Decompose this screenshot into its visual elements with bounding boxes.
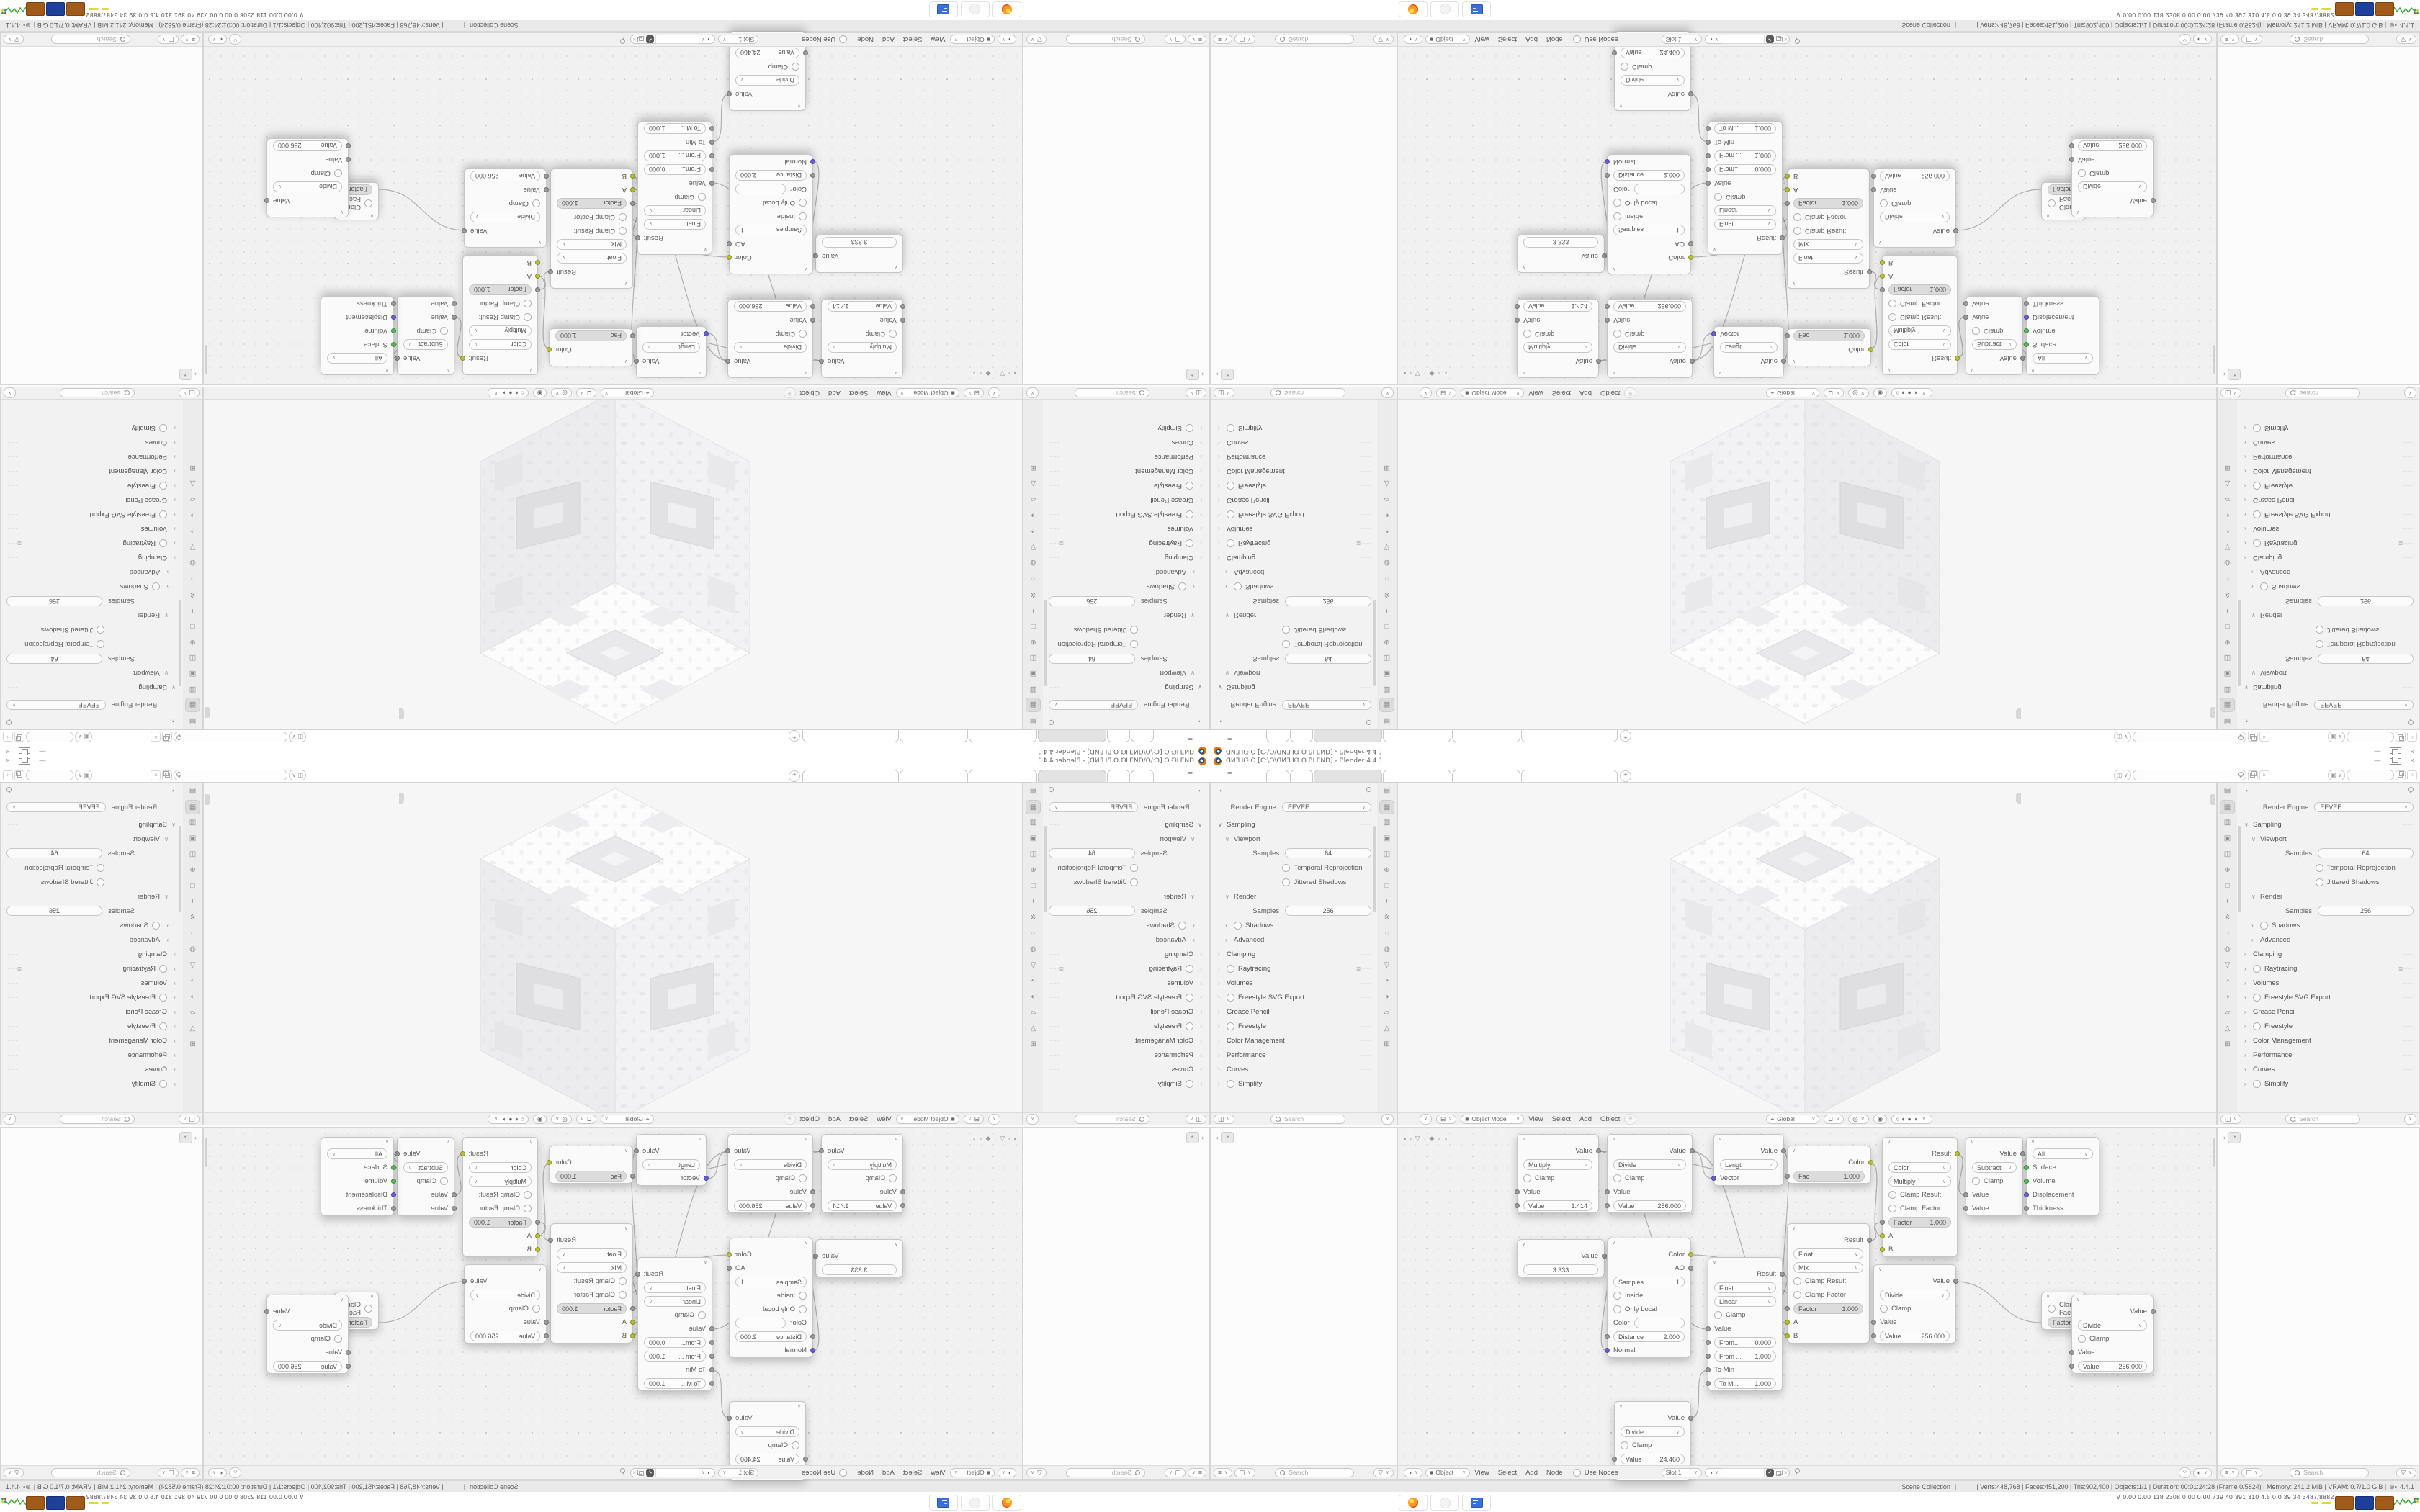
section-checkbox[interactable]: [1186, 540, 1193, 548]
grip-dots[interactable]: ····: [1361, 980, 1371, 986]
input-socket[interactable]: [1785, 1333, 1790, 1338]
input-socket[interactable]: [630, 1333, 635, 1338]
input-socket[interactable]: [803, 1457, 808, 1462]
node-collapse-arrow[interactable]: ∨: [2072, 207, 2153, 217]
input-socket[interactable]: [1785, 1320, 1790, 1325]
menu-select[interactable]: Select: [1498, 36, 1517, 44]
node-map-range[interactable]: ∨ResultFloat∨Linear∨ClampValueFrom...0.0…: [1708, 121, 1783, 255]
grip-dots[interactable]: ····: [1361, 454, 1371, 461]
node-collapse-arrow[interactable]: ∨: [1608, 368, 1692, 377]
input-socket[interactable]: [535, 274, 540, 279]
options-button[interactable]: ∨: [2404, 1114, 2416, 1125]
properties-tab-icon[interactable]: ▦: [2220, 800, 2235, 814]
node-checkbox[interactable]: [2078, 169, 2086, 177]
node-select[interactable]: Divide∨: [1613, 1159, 1686, 1170]
node-checkbox[interactable]: [524, 1191, 532, 1199]
tab-2[interactable]: [1107, 770, 1130, 783]
unlink-icon[interactable]: ×: [632, 36, 636, 43]
node-checkbox[interactable]: [524, 1205, 532, 1212]
node-value-field[interactable]: 3.333: [822, 1264, 897, 1275]
node-checkbox[interactable]: [1613, 330, 1621, 338]
filter-funnel-button[interactable]: ▽∨: [1026, 1468, 1047, 1477]
node-mix-color-fac[interactable]: ∨ColorFac1.000: [1787, 1146, 1871, 1184]
firefox-icon[interactable]: [1399, 1495, 1428, 1511]
filter-type-button[interactable]: ◫∨: [2241, 1468, 2262, 1477]
input-socket[interactable]: [630, 187, 635, 192]
properties-scrollbar[interactable]: [1373, 600, 1376, 686]
search-input[interactable]: Search: [2290, 1468, 2369, 1477]
grip-dots[interactable]: ····: [1361, 498, 1371, 504]
grip-dots[interactable]: ····: [2403, 685, 2414, 691]
properties-tab-icon[interactable]: ▤: [2220, 714, 2235, 728]
properties-tab-icon[interactable]: ◑: [1026, 990, 1041, 1004]
properties-tab-icon[interactable]: ※: [1026, 587, 1041, 601]
node-collapse-arrow[interactable]: ∨: [730, 264, 812, 274]
node-value-field[interactable]: Value256.000: [2078, 140, 2147, 151]
grip-dots[interactable]: ····: [2403, 951, 2414, 958]
menu-view[interactable]: View: [1528, 1115, 1543, 1123]
tab-5[interactable]: [900, 770, 968, 783]
shading-mode-group[interactable]: ○◐●◑∨: [1891, 389, 1932, 398]
tab-5[interactable]: [900, 729, 968, 742]
node-value-field[interactable]: Value256.000: [2078, 1361, 2147, 1372]
input-socket[interactable]: [2069, 157, 2074, 162]
properties-tab-icon[interactable]: ◔: [1026, 974, 1041, 989]
node-select[interactable]: Length∨: [642, 1159, 700, 1170]
input-socket[interactable]: [1785, 201, 1790, 206]
checkbox[interactable]: [97, 626, 104, 634]
node-collapse-arrow[interactable]: ∨: [463, 365, 537, 374]
pin-icon[interactable]: [1366, 787, 1371, 796]
node-collapse-arrow[interactable]: ∨: [1608, 1135, 1692, 1144]
tab-3[interactable]: [1038, 770, 1106, 783]
grip-dots[interactable]: ····: [1361, 1081, 1371, 1087]
firefox-icon[interactable]: [1399, 1, 1428, 17]
tab-1[interactable]: [1131, 729, 1154, 742]
gizmo-button[interactable]: ◉: [533, 1115, 547, 1124]
header-collapse-button[interactable]: ∨: [988, 388, 1000, 399]
input-socket[interactable]: [810, 159, 815, 164]
render-engine-select[interactable]: EEVEE∨: [2314, 802, 2414, 812]
use-nodes-toggle[interactable]: ​Use Nodes: [802, 1469, 847, 1477]
breadcrumb-icon[interactable]: ◆: [1429, 369, 1434, 377]
node-value-field[interactable]: Samples1: [1613, 1277, 1685, 1287]
tab-4[interactable]: [969, 770, 1037, 783]
copy-icon[interactable]: [1776, 37, 1782, 43]
grip-dots[interactable]: ····: [1049, 966, 1059, 972]
output-socket[interactable]: [1602, 1254, 1607, 1259]
breadcrumb-icon[interactable]: ▽: [1000, 1135, 1005, 1143]
node-checkbox[interactable]: [1888, 1205, 1896, 1212]
node-collapse-arrow[interactable]: ∨: [465, 238, 546, 247]
node-value-field[interactable]: Distance2.000: [735, 1331, 807, 1342]
output-socket[interactable]: [635, 235, 640, 240]
close-icon[interactable]: ×: [2259, 732, 2269, 742]
node-material-output[interactable]: ∨All∨SurfaceVolumeDisplacementThickness: [321, 296, 394, 375]
filter-funnel-button[interactable]: ▽∨: [1026, 35, 1047, 45]
editor-type-button[interactable]: ◫∨: [2220, 389, 2241, 398]
node-value-field[interactable]: To M...1.000: [1714, 123, 1776, 134]
input-socket[interactable]: [391, 1179, 396, 1184]
grip-dots[interactable]: ····: [6, 1081, 17, 1087]
search-input[interactable]: Search: [1270, 1115, 1345, 1124]
input-socket[interactable]: [1605, 1348, 1610, 1353]
node-math-divide-a[interactable]: ∨ValueDivide∨ClampValueValue256.000: [727, 299, 813, 378]
node-select[interactable]: Float∨: [557, 1248, 627, 1259]
filter-type-button[interactable]: ◫∨: [1234, 1468, 1255, 1477]
properties-tab-icon[interactable]: ▤: [1379, 784, 1394, 798]
pin-icon[interactable]: [1049, 787, 1054, 796]
node-select[interactable]: All∨: [2033, 1148, 2093, 1159]
input-socket[interactable]: [900, 304, 905, 309]
properties-tab-icon[interactable]: ◔: [185, 974, 200, 989]
id-field[interactable]: [26, 770, 73, 780]
input-socket[interactable]: [1706, 1381, 1711, 1386]
search-input[interactable]: Search: [1075, 389, 1149, 398]
checkbox[interactable]: [1282, 626, 1290, 634]
section-checkbox[interactable]: [1227, 482, 1234, 490]
node-select[interactable]: Float∨: [557, 253, 627, 264]
sidebar-toggle-nub[interactable]: [399, 793, 404, 804]
properties-tab-icon[interactable]: ◌: [1026, 571, 1041, 585]
properties-tab-icon[interactable]: ◑: [1379, 508, 1394, 522]
checkbox[interactable]: [1282, 864, 1290, 872]
output-socket[interactable]: [395, 356, 400, 361]
grip-dots[interactable]: ····: [1049, 426, 1059, 432]
input-socket[interactable]: [1880, 260, 1885, 265]
properties-tab-icon[interactable]: ▣: [1379, 832, 1394, 846]
grip-dots[interactable]: ····: [1049, 541, 1059, 547]
grip-dots[interactable]: ····: [6, 1023, 17, 1030]
image-icon[interactable]: ▣ ∨: [2328, 770, 2345, 780]
input-socket[interactable]: [900, 1189, 905, 1194]
input-socket[interactable]: [630, 333, 635, 338]
pin-icon[interactable]: [620, 33, 626, 46]
tab-4[interactable]: [1383, 770, 1451, 783]
input-socket[interactable]: [1605, 1189, 1610, 1194]
section-checkbox[interactable]: [1227, 540, 1234, 548]
shading-mode-group[interactable]: ○◐●◑∨: [488, 389, 529, 398]
properties-tab-icon[interactable]: ▥: [1026, 816, 1041, 830]
display-settings-icon[interactable]: [1462, 1, 1491, 17]
inactive-app-icon[interactable]: [1430, 1495, 1459, 1511]
firefox-icon[interactable]: [992, 1, 1021, 17]
options-button[interactable]: ∨: [2404, 388, 2416, 399]
tab-6[interactable]: [1521, 729, 1618, 742]
output-socket[interactable]: [1688, 241, 1693, 246]
properties-tab-icon[interactable]: ※: [2220, 911, 2235, 925]
node-select[interactable]: Multiply∨: [469, 1176, 532, 1187]
grip-dots[interactable]: ····: [6, 555, 17, 562]
grip-dots[interactable]: ····: [2403, 994, 2414, 1001]
properties-tab-icon[interactable]: ⊞: [185, 1038, 200, 1052]
slot-select[interactable]: Slot 1∨: [718, 1468, 758, 1477]
properties-tab-icon[interactable]: ▱: [2220, 492, 2235, 506]
node-value-field[interactable]: Factor1.000: [469, 284, 532, 295]
input-socket[interactable]: [535, 1233, 540, 1238]
input-socket[interactable]: [1880, 1233, 1885, 1238]
section-checkbox[interactable]: [1186, 425, 1193, 433]
checkbox[interactable]: [1130, 626, 1138, 634]
value-field[interactable]: 256: [1285, 596, 1371, 606]
node-collapse-arrow[interactable]: ∨: [730, 1238, 812, 1248]
properties-tab-icon[interactable]: ▣: [1026, 666, 1041, 680]
node-value-field[interactable]: Value1.414: [828, 1200, 897, 1211]
node-collapse-arrow[interactable]: ∨: [463, 1138, 537, 1147]
input-socket[interactable]: [810, 1348, 815, 1353]
node-value-field[interactable]: From...0.000: [1714, 164, 1776, 175]
node-collapse-arrow[interactable]: ∨: [816, 263, 902, 272]
input-socket[interactable]: [2024, 315, 2029, 320]
properties-tab-icon[interactable]: ◍: [1379, 555, 1394, 570]
grip-dots[interactable]: ····: [6, 822, 17, 828]
section-checkbox[interactable]: [1227, 1080, 1234, 1088]
properties-tab-icon[interactable]: ⊕: [2220, 634, 2235, 649]
properties-tab-icon[interactable]: ⊞: [1379, 460, 1394, 474]
node-select[interactable]: Mix∨: [1793, 1262, 1863, 1273]
input-socket[interactable]: [1880, 1247, 1885, 1252]
output-socket[interactable]: [1688, 1252, 1693, 1257]
properties-tab-icon[interactable]: ※: [1026, 911, 1041, 925]
grip-dots[interactable]: ····: [1361, 526, 1371, 533]
checkbox[interactable]: [1130, 864, 1138, 872]
display-mode-button[interactable]: ≡∨: [1188, 35, 1206, 45]
input-socket[interactable]: [900, 1203, 905, 1208]
node-collapse-arrow[interactable]: ∨: [1518, 1240, 1604, 1249]
node-collapse-arrow[interactable]: ∨: [1615, 101, 1690, 110]
restore-button[interactable]: [2390, 746, 2400, 755]
node-collapse-arrow[interactable]: ∨: [1788, 356, 1870, 366]
input-socket[interactable]: [544, 187, 549, 192]
node-collapse-arrow[interactable]: ∨: [2072, 1295, 2153, 1305]
node-value-field[interactable]: Samples1: [735, 225, 807, 235]
render-engine-select[interactable]: EEVEE∨: [1282, 802, 1371, 812]
node-collapse-arrow[interactable]: ∨: [1714, 1135, 1783, 1144]
node-collapse-arrow[interactable]: ∨: [1518, 1135, 1598, 1144]
properties-tab-icon[interactable]: ◑: [2220, 990, 2235, 1004]
output-socket[interactable]: [727, 241, 732, 246]
node-select[interactable]: Linear∨: [644, 205, 706, 216]
pivot-point-button[interactable]: ◎∨: [1848, 1115, 1869, 1124]
properties-tab-icon[interactable]: △: [2220, 1022, 2235, 1036]
properties-tab-icon[interactable]: ⊕: [2220, 863, 2235, 878]
tab-2[interactable]: [1107, 729, 1130, 742]
output-socket[interactable]: [813, 1254, 818, 1259]
pin-icon[interactable]: [1049, 716, 1054, 726]
output-socket[interactable]: [813, 253, 818, 258]
node-value-field[interactable]: Factor1.000: [1888, 284, 1951, 295]
input-socket[interactable]: [535, 1247, 540, 1252]
input-socket[interactable]: [391, 1206, 396, 1211]
list-icon[interactable]: ≣: [2398, 966, 2403, 972]
output-socket[interactable]: [2151, 1309, 2156, 1314]
node-ambient-occlusion[interactable]: ∨ColorAOSamples1InsideOnly LocalColorDis…: [729, 154, 813, 274]
node-collapse-arrow[interactable]: ∨: [1883, 365, 1957, 374]
output-socket[interactable]: [1953, 228, 1958, 233]
section-checkbox[interactable]: [1186, 965, 1193, 973]
input-socket[interactable]: [1706, 1340, 1711, 1345]
grip-dots[interactable]: ····: [1361, 1023, 1371, 1030]
header-collapse-button[interactable]: ∨: [988, 1114, 1000, 1125]
node-checkbox[interactable]: [1621, 1441, 1628, 1449]
grip-dots[interactable]: ····: [2403, 526, 2414, 533]
node-value-field[interactable]: Fac1.000: [555, 1171, 627, 1182]
auto-render-icon[interactable]: ↻: [229, 1467, 241, 1478]
input-socket[interactable]: [1605, 318, 1610, 323]
tab-4[interactable]: [969, 729, 1037, 742]
inactive-app-icon[interactable]: [961, 1, 990, 17]
properties-icon[interactable]: ◫ ∨: [2114, 770, 2131, 780]
node-value-field[interactable]: From ...1.000: [644, 1351, 706, 1362]
node-collapse-arrow[interactable]: ∨: [1788, 1146, 1870, 1156]
output-socket[interactable]: [725, 1148, 730, 1153]
use-nodes-toggle[interactable]: ​Use Nodes: [802, 36, 847, 44]
input-socket[interactable]: [1871, 1333, 1876, 1338]
node-checkbox[interactable]: [1972, 327, 1980, 335]
grip-dots[interactable]: ····: [2403, 555, 2414, 562]
node-value-field[interactable]: Value24.460: [735, 1454, 799, 1464]
output-socket[interactable]: [548, 269, 553, 274]
properties-tab-icon[interactable]: ◫: [185, 847, 200, 862]
properties-tab-icon[interactable]: ◑: [2220, 508, 2235, 522]
tab-2[interactable]: [1290, 729, 1313, 742]
node-math-multiply[interactable]: ∨ValueMultiply∨ClampValueValue1.414: [1517, 299, 1599, 378]
mode-options-icon[interactable]: ⊗: [1624, 388, 1636, 399]
grip-dots[interactable]: ····: [1361, 966, 1371, 972]
checkbox[interactable]: [2316, 626, 2323, 634]
node-value-field[interactable]: From...0.000: [644, 1337, 706, 1348]
editor-type-button[interactable]: ◑∨: [998, 35, 1016, 45]
properties-tab-icon[interactable]: □: [2220, 879, 2235, 894]
preview-sphere-button[interactable]: ◐∨: [208, 1468, 227, 1477]
id-field[interactable]: [2347, 732, 2394, 742]
node-value-node[interactable]: ∨Value3.333: [1517, 235, 1605, 273]
node-math-divide-c[interactable]: ∨ValueDivide∨ClampValueValue256.000: [2071, 138, 2154, 217]
grip-dots[interactable]: ····: [6, 483, 17, 490]
properties-tab-icon[interactable]: ▥: [1026, 682, 1041, 696]
node-select[interactable]: Mix∨: [557, 1262, 627, 1273]
sidebar-toggle-nub[interactable]: [2016, 708, 2021, 719]
input-socket[interactable]: [1871, 1320, 1876, 1325]
properties-tab-icon[interactable]: ▽: [2220, 539, 2235, 554]
breadcrumb-icon[interactable]: ◑: [973, 1135, 977, 1143]
node-value-field[interactable]: Distance2.000: [735, 170, 807, 181]
properties-tab-icon[interactable]: ▽: [1026, 539, 1041, 554]
node-checkbox[interactable]: [2078, 1335, 2086, 1343]
tab-4[interactable]: [1383, 729, 1451, 742]
node-checkbox[interactable]: [1621, 63, 1628, 71]
node-select[interactable]: Float∨: [644, 1282, 706, 1293]
node-checkbox[interactable]: [619, 213, 627, 221]
grip-dots[interactable]: ····: [1049, 1081, 1059, 1087]
copy-icon[interactable]: [1776, 1470, 1782, 1476]
grip-dots[interactable]: ····: [1361, 426, 1371, 432]
mode-select[interactable]: ■ Object Mode∨: [896, 389, 959, 398]
properties-tab-icon[interactable]: ▦: [1026, 800, 1041, 814]
properties-tab-icon[interactable]: □: [2220, 618, 2235, 633]
close-button[interactable]: ×: [2407, 746, 2417, 755]
copy-icon[interactable]: [2396, 770, 2406, 780]
filter-type-button[interactable]: ◫∨: [2241, 35, 2262, 45]
new-tab-button[interactable]: +: [789, 770, 800, 782]
close-icon[interactable]: ×: [2407, 770, 2417, 780]
copy-icon[interactable]: [162, 770, 172, 780]
properties-tab-icon[interactable]: ▣: [1026, 832, 1041, 846]
section-checkbox[interactable]: [2260, 583, 2268, 591]
node-map-range[interactable]: ∨ResultFloat∨Linear∨ClampValueFrom...0.0…: [1708, 1257, 1783, 1391]
section-checkbox[interactable]: [1227, 511, 1234, 519]
mode-options-icon[interactable]: ⊗: [784, 1114, 796, 1125]
node-checkbox[interactable]: [889, 1174, 897, 1182]
input-socket[interactable]: [1963, 1206, 1968, 1211]
menu-object[interactable]: Object: [1600, 390, 1620, 397]
collapsed-panel-tag[interactable]: ›◔: [1186, 1132, 1204, 1143]
output-socket[interactable]: [1596, 359, 1601, 364]
input-socket[interactable]: [810, 1203, 815, 1208]
collapsed-panel-tag[interactable]: ›◔: [1216, 369, 1234, 380]
grip-dots[interactable]: ····: [6, 966, 17, 972]
input-socket[interactable]: [704, 331, 709, 336]
checkbox[interactable]: [1130, 641, 1138, 649]
node-checkbox[interactable]: [2048, 1305, 2056, 1313]
input-socket[interactable]: [709, 1367, 714, 1372]
properties-scrollbar[interactable]: [2238, 826, 2241, 912]
use-nodes-toggle[interactable]: ​Use Nodes: [1573, 1469, 1618, 1477]
output-socket[interactable]: [635, 1272, 640, 1277]
material-selector[interactable]: ◑∨✓×: [630, 1468, 715, 1477]
node-collapse-arrow[interactable]: ∨: [1788, 1224, 1869, 1233]
sidebar-toggle-nub[interactable]: [2210, 794, 2215, 805]
filter-funnel-button[interactable]: ▽∨: [4, 35, 24, 45]
input-socket[interactable]: [709, 126, 714, 131]
close-button[interactable]: ×: [2407, 757, 2417, 766]
menu-node[interactable]: Node: [857, 36, 874, 44]
grip-dots[interactable]: ····: [1049, 1038, 1059, 1044]
node-checkbox[interactable]: [1613, 1292, 1621, 1300]
properties-tab-icon[interactable]: ▥: [1379, 682, 1394, 696]
node-select[interactable]: Divide∨: [1880, 212, 1950, 222]
grip-dots[interactable]: ····: [6, 1038, 17, 1044]
node-select[interactable]: Length∨: [642, 342, 700, 353]
grip-dots[interactable]: ····: [6, 951, 17, 958]
section-checkbox[interactable]: [2253, 965, 2261, 973]
output-socket[interactable]: [2151, 198, 2156, 203]
menu-add[interactable]: Add: [1525, 1469, 1538, 1477]
node-select[interactable]: Divide∨: [1880, 1290, 1950, 1300]
checkbox[interactable]: [2316, 878, 2323, 886]
auto-render-icon[interactable]: ↻: [229, 35, 241, 45]
grip-dots[interactable]: ····: [1361, 1009, 1371, 1015]
editor-type-button[interactable]: ◑∨: [1404, 1468, 1422, 1477]
list-icon[interactable]: ≣: [1059, 541, 1065, 547]
search-input[interactable]: Search: [1066, 35, 1145, 45]
node-value-field[interactable]: Fac1.000: [1793, 330, 1865, 341]
output-socket[interactable]: [1955, 356, 1960, 361]
node-checkbox[interactable]: [1613, 212, 1621, 220]
menu-add[interactable]: Add: [882, 1469, 895, 1477]
grip-dots[interactable]: ····: [1049, 822, 1059, 828]
properties-tab-icon[interactable]: ⊕: [185, 634, 200, 649]
properties-tab-icon[interactable]: ◫: [2220, 847, 2235, 862]
node-select[interactable]: Divide∨: [1621, 1426, 1685, 1437]
properties-tab-icon[interactable]: □: [1026, 879, 1041, 894]
node-checkbox[interactable]: [364, 1305, 372, 1313]
fake-user-shield-icon[interactable]: ✓: [1766, 1469, 1774, 1477]
input-socket[interactable]: [810, 1334, 815, 1339]
grip-dots[interactable]: ····: [2403, 454, 2414, 461]
menu-node[interactable]: Node: [1546, 36, 1563, 44]
minimize-button[interactable]: —: [37, 757, 48, 766]
